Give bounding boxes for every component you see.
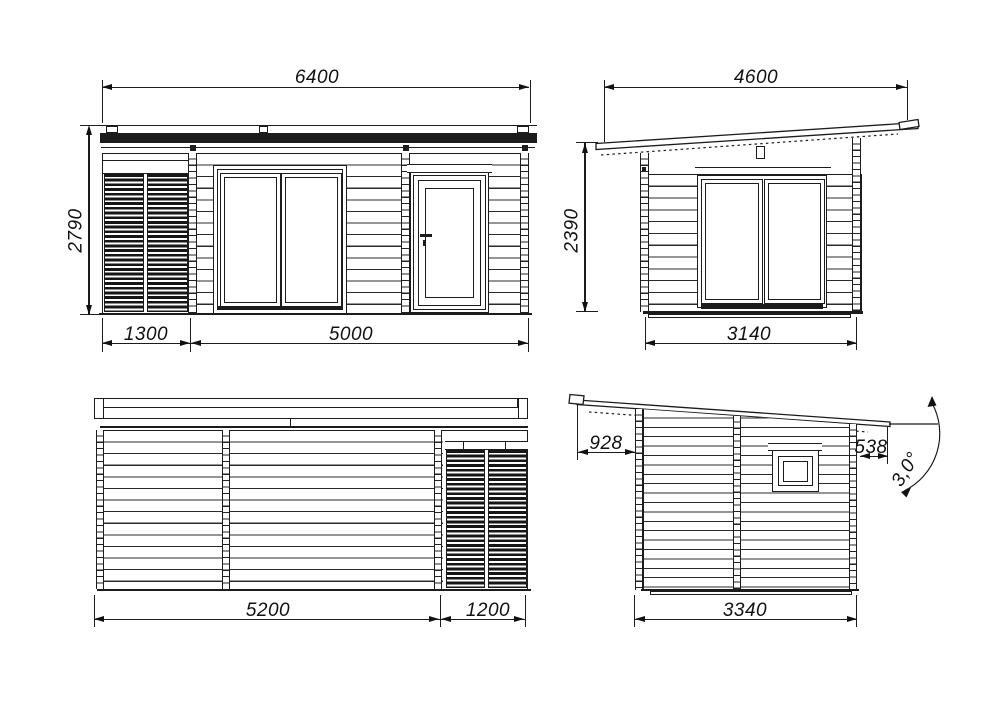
foundation-strip [650, 591, 852, 596]
dim-width-label: 3340 [720, 601, 770, 620]
arrowhead [847, 616, 857, 622]
arrowhead [635, 616, 645, 622]
extension-line [634, 595, 635, 627]
dim-right-overhang-label: 538 [846, 438, 896, 457]
side-wall [643, 408, 857, 590]
drawing-canvas: 6400 2790 1300 5000 [0, 0, 1000, 704]
extension-line [856, 595, 857, 627]
left-side-elevation-view: 928 538 3,0° 3340 [0, 0, 1000, 704]
corner-log-post [635, 409, 643, 590]
window-glass [783, 461, 808, 482]
corner-log-post [733, 416, 741, 590]
dim-left-overhang-label: 928 [581, 434, 631, 453]
